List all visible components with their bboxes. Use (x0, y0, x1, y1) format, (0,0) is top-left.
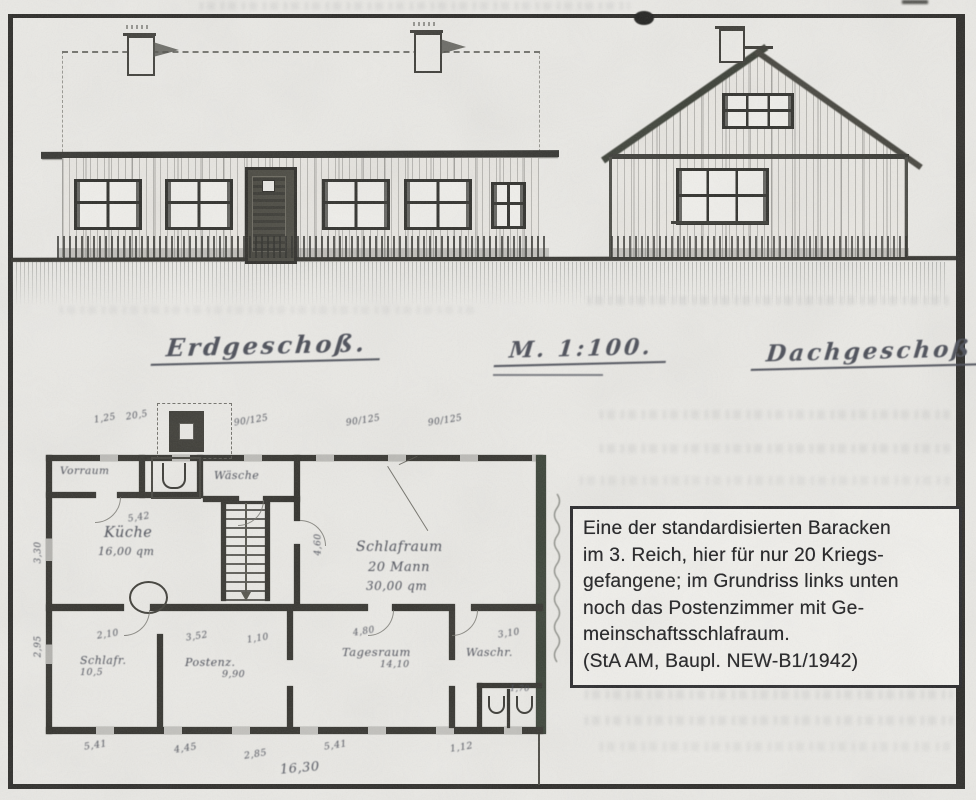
room-label-schlafraum: Schlafraum (356, 540, 443, 554)
chimney-right-cap (410, 30, 443, 33)
dim-label: 5,42 (127, 512, 150, 524)
dim-label: 2,10 (96, 629, 119, 641)
front-window-5 (491, 182, 526, 229)
chimney-right-flag (440, 39, 466, 54)
room-label-kueche: Küche (104, 526, 152, 541)
gable-ridge-tick (745, 46, 773, 49)
caption-line: (StA AM, Baupl. NEW-B1/1942) (583, 649, 949, 676)
door-arc (452, 610, 478, 636)
room-area-kueche: 16,00 qm (98, 546, 154, 557)
dim-label: 2,95 (35, 635, 44, 657)
room-label-schlafr: Schlafr. (80, 655, 126, 666)
dim-label: 3,10 (497, 628, 520, 640)
chimney-left-marks (126, 25, 148, 29)
gable-main-window (676, 168, 769, 225)
bleed-through-text (600, 444, 950, 453)
chimney-right (414, 33, 442, 73)
plan-wall (294, 455, 300, 521)
caption-line: im 3. Reich, hier für nur 20 Kriegs- (583, 543, 949, 570)
dim-label: 4,80 (352, 626, 375, 638)
plan-chimney-flue (179, 423, 194, 440)
room-area-schlafraum: 30,00 qm (366, 580, 427, 592)
room-area-schlafr: 10,5 (80, 668, 103, 678)
plan-wall (287, 686, 293, 728)
dim-label: 20,5 (125, 410, 148, 422)
plan-wall (287, 611, 293, 660)
room-label-waschraum: Waschr. (466, 647, 513, 658)
door-arc (124, 610, 150, 636)
massstab-underline-2 (493, 374, 603, 376)
label-dachgeschoss: Dachgeschoß (751, 337, 976, 371)
caption-line: noch das Postenzimmer mit Ge- (583, 596, 949, 623)
chimney-right-marks (413, 22, 435, 26)
dim-label: 5,41 (83, 739, 107, 752)
bleed-through-text (585, 716, 953, 725)
room-label-waesche: Wäsche (214, 470, 259, 481)
dim-label: 1,12 (449, 741, 473, 754)
room-label-vorraum: Vorraum (60, 466, 109, 477)
plan-wall-right (536, 455, 546, 734)
dim-label: 4,60 (315, 533, 324, 555)
gable-loft-line (609, 154, 909, 159)
stair-wall (265, 503, 270, 601)
gable-chimney-cap (715, 26, 745, 29)
bleed-through-text (585, 690, 953, 699)
label-erdgeschoss: Erdgeschoß. (151, 331, 383, 366)
ink-blob (634, 11, 654, 25)
front-window-4 (404, 179, 472, 230)
bleed-through-text (580, 476, 950, 485)
stair-arrow (241, 592, 251, 601)
door-arc (95, 497, 121, 523)
chimney-left (127, 36, 155, 76)
room-area-posten: 9,90 (222, 670, 245, 680)
dim-label: 90/125 (234, 414, 270, 428)
gable-window-sill (671, 221, 768, 224)
front-window-3 (322, 179, 390, 230)
bleed-through-text (600, 410, 950, 419)
dim-total-label: 16,30 (280, 760, 321, 776)
dim-label: 3,52 (185, 631, 208, 643)
room-capacity-schlafraum: 20 Mann (368, 561, 430, 574)
dim-label: 3,30 (35, 541, 44, 563)
bleed-through-text (600, 742, 950, 751)
plan-wall (46, 492, 96, 498)
plan-wall (46, 604, 124, 611)
wc-room-wall (477, 683, 482, 728)
toilet-fixture (488, 696, 505, 714)
plan-wall (157, 634, 163, 728)
front-window-2 (165, 179, 233, 230)
caption-line: Eine der standardisierten Baracken (583, 516, 949, 543)
dim-label: 4,45 (173, 742, 197, 755)
chimney-left-cap (123, 33, 156, 36)
plan-wall (294, 544, 300, 606)
frame-bottom (8, 784, 965, 789)
plan-wall (471, 604, 543, 611)
toilet-fixture (162, 463, 186, 489)
gable-attic-window (722, 93, 794, 129)
toilet-fixture (516, 696, 533, 714)
dim-label: 2,85 (243, 748, 267, 761)
room-label-tagesraum: Tagesraum (342, 647, 411, 659)
dim-label: 90/125 (346, 414, 382, 428)
front-foundation (57, 236, 549, 258)
frame-top (8, 14, 958, 18)
plan-wall-bottom (46, 727, 543, 734)
room-area-tagesraum: 14,10 (380, 660, 410, 670)
scanned-plan-page: Erdgeschoß. M. 1:100. Dachgeschoß (0, 0, 976, 800)
gable-foundation (611, 236, 909, 258)
frame-left (8, 14, 13, 789)
front-roof-right-edge (539, 51, 540, 157)
label-massstab: M. 1:100. (494, 336, 668, 367)
caption-box: Eine der standardisierten Baracken im 3.… (570, 506, 962, 688)
plan-wall (150, 604, 368, 611)
scan-mark (902, 0, 928, 4)
dim-label: 90/125 (428, 414, 464, 428)
caption-line: gefangene; im Grundriss links unten (583, 569, 949, 596)
bleed-through-text (200, 2, 630, 10)
bleed-through-text (60, 306, 480, 314)
plan-extension-line (538, 734, 540, 785)
handwritten-vertical-note (548, 492, 566, 667)
room-label-posten: Postenz. (185, 657, 236, 668)
dim-label: 1,25 (93, 413, 116, 425)
front-roof-left-edge (62, 51, 63, 157)
gable-chimney (719, 29, 745, 63)
dim-label: 1,10 (246, 633, 269, 645)
dim-label: 5,41 (323, 739, 347, 752)
front-window-1 (74, 179, 142, 230)
wc-room-wall (507, 689, 510, 728)
pencil-slash (387, 466, 428, 531)
caption-line: meinschaftsschlafraum. (583, 622, 949, 649)
chimney-left-flag (153, 42, 179, 57)
plan-wall (449, 686, 455, 728)
plan-wall (392, 604, 455, 611)
front-door-window (262, 180, 275, 192)
dim-label: 1,70 (510, 685, 530, 693)
bleed-through-text (588, 296, 948, 305)
